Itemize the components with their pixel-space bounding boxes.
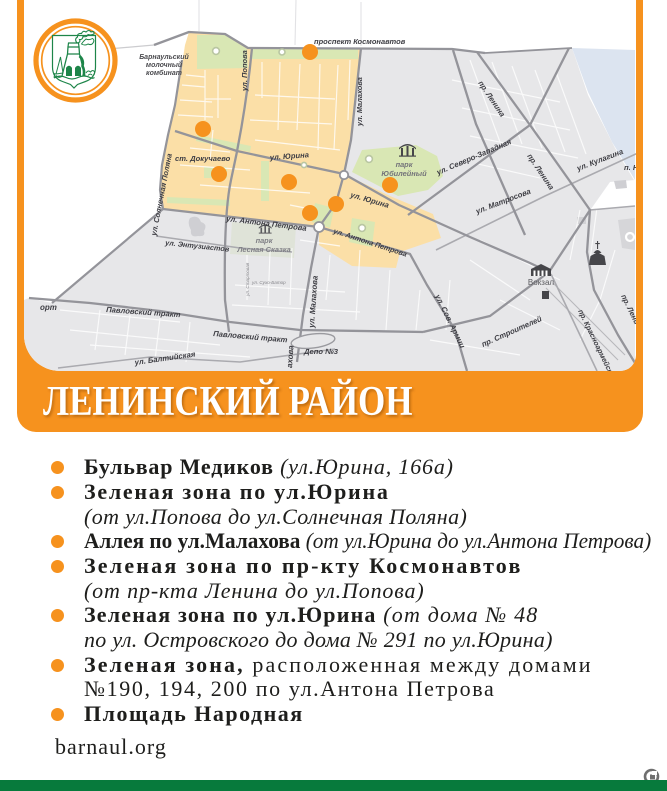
svg-text:орт: орт bbox=[40, 303, 57, 312]
svg-text:ахова: ахова bbox=[285, 345, 296, 369]
svg-text:ул. Попова: ул. Попова bbox=[240, 50, 249, 92]
svg-text:парк: парк bbox=[396, 160, 414, 169]
svg-text:Юбилейный: Юбилейный bbox=[381, 169, 427, 178]
svg-text:ул. Малахова: ул. Малахова bbox=[355, 77, 364, 127]
svg-text:комбинат: комбинат bbox=[146, 69, 182, 77]
svg-text:Депо №3: Депо №3 bbox=[303, 347, 339, 356]
svg-text:ст. Докучаево: ст. Докучаево bbox=[175, 154, 231, 163]
svg-text:молочный: молочный bbox=[146, 61, 183, 69]
svg-text:ул. Сухо-Батор: ул. Сухо-Батор bbox=[251, 280, 286, 285]
svg-text:ул. Стартовая: ул. Стартовая bbox=[245, 262, 250, 297]
svg-text:Вокзал: Вокзал bbox=[528, 278, 554, 287]
svg-text:п. Н: п. Н bbox=[624, 163, 636, 172]
svg-text:Барнаульский: Барнаульский bbox=[139, 53, 189, 61]
svg-text:Лесная Сказка: Лесная Сказка bbox=[236, 245, 290, 254]
svg-text:проспект Космонавтов: проспект Космонавтов bbox=[314, 37, 406, 46]
svg-text:парк: парк bbox=[256, 236, 274, 245]
